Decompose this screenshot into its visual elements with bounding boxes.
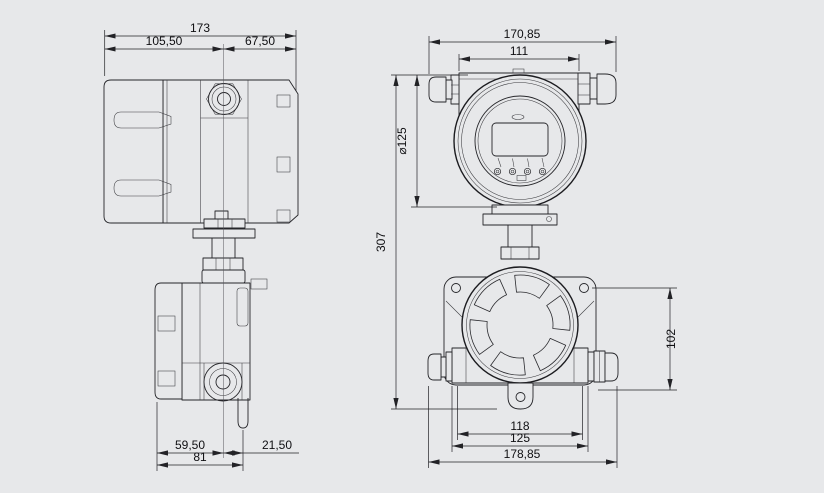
dim-label-bottom-width: 178,85 [504,447,541,461]
neck-hex-nut [203,258,243,270]
mounting-ear-side [238,398,248,428]
cable-gland-top-right [578,73,616,104]
dim-label-bottom-total: 81 [193,450,207,464]
flowmeter-dimension-drawing: 173 105,50 67,50 59,50 21,50 81 [0,0,824,493]
cable-gland-top-left [429,75,459,104]
technical-drawing-canvas: 173 105,50 67,50 59,50 21,50 81 [0,0,824,493]
side-view-transmitter-housing [104,80,298,223]
sensor-cover-cap [155,283,182,399]
front-view-sensor [428,267,618,409]
cable-gland-bottom-right [588,351,618,382]
dim-label-housing-width: 111 [510,44,529,58]
front-view-display-head [454,75,586,207]
neck-hex-nut-front [501,247,539,259]
side-view-sensor-housing [155,279,267,428]
front-view-neck [483,205,557,259]
neck-flange [193,229,255,238]
display-window [475,96,565,186]
dim-label-width-left: 105,50 [146,34,183,48]
dim-label-bracket-width: 125 [510,431,530,445]
mounting-ear-bottom [508,383,533,409]
dim-label-bottom-right: 21,50 [262,438,292,452]
display-cover-cap [104,80,163,223]
dim-label-head-diameter: ⌀125 [395,127,409,155]
dim-label-fv-total-width: 170,85 [504,27,541,41]
dim-label-total-width: 173 [190,21,210,35]
front-view: 170,85 111 ⌀125 307 102 118 125 [374,27,678,468]
dim-label-sensor-height: 102 [664,329,678,349]
cable-gland-bottom-left [428,352,452,381]
side-view: 173 105,50 67,50 59,50 21,50 81 [104,21,299,471]
dim-label-total-height: 307 [374,232,388,252]
dim-label-width-right: 67,50 [245,34,275,48]
